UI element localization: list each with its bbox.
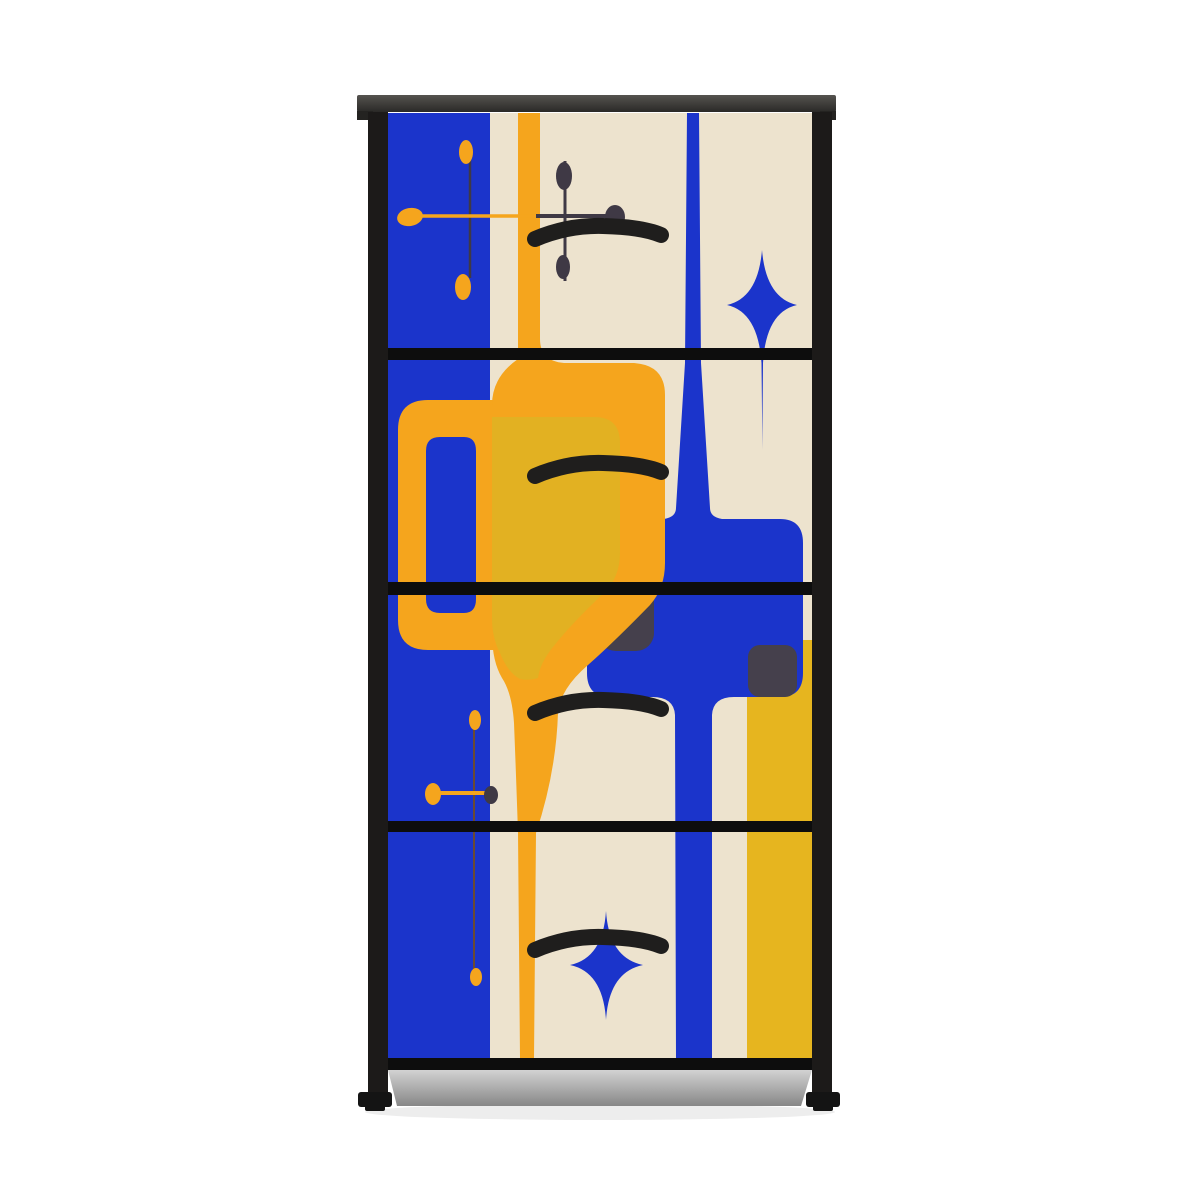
left-post: [368, 112, 388, 1102]
right-foot-glide: [813, 1105, 833, 1111]
bottom-rail: [388, 1058, 812, 1070]
right-post: [812, 112, 832, 1102]
dresser: [0, 0, 1200, 1200]
right-foot-flange: [806, 1092, 840, 1107]
base-panel: [388, 1070, 812, 1106]
drawer-art: [388, 113, 812, 1058]
drawer-4[interactable]: [388, 832, 812, 1058]
drawer-divider-1: [388, 348, 812, 360]
top-slab: [357, 95, 836, 112]
drawer-divider-3: [388, 821, 812, 832]
floor-shadow: [365, 1104, 835, 1120]
drawer-divider-2: [388, 582, 812, 595]
left-foot-glide: [365, 1105, 385, 1111]
product-photo: [0, 0, 1200, 1200]
left-foot-flange: [358, 1092, 392, 1107]
drawer-1[interactable]: [388, 113, 812, 348]
drawer-3[interactable]: [388, 595, 812, 821]
drawer-2[interactable]: [388, 360, 812, 582]
